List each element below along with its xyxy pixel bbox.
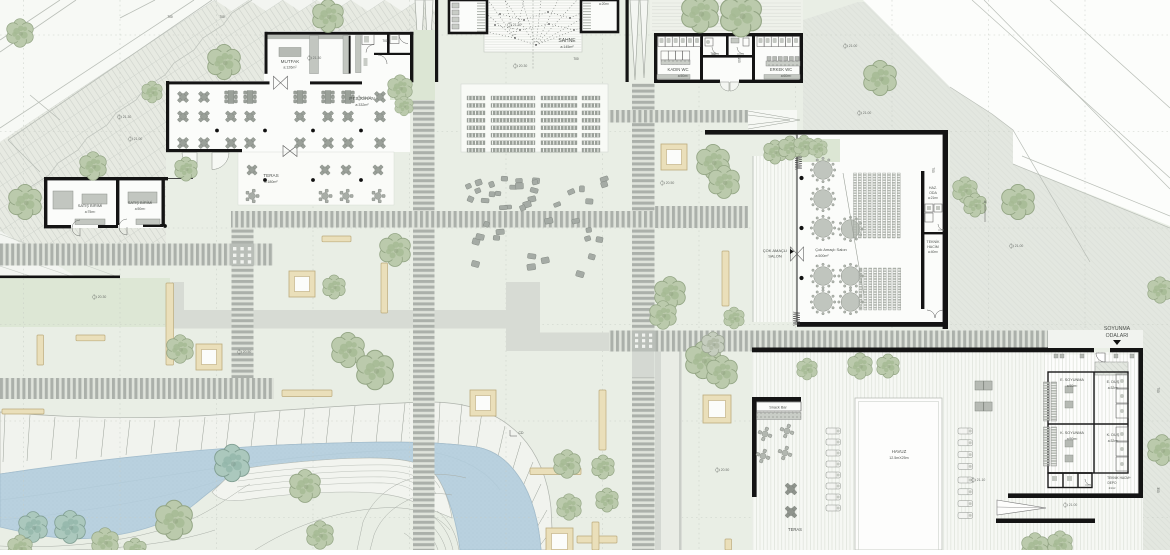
svg-text:a:20m²: a:20m² <box>599 2 609 6</box>
svg-text:20.50: 20.50 <box>666 181 675 185</box>
svg-text:21.30: 21.30 <box>123 115 132 119</box>
svg-text:a:50m²: a:50m² <box>678 74 689 78</box>
svg-text:a:40m²: a:40m² <box>928 250 938 254</box>
svg-text:20.30: 20.30 <box>98 295 107 299</box>
svg-text:TERAS: TERAS <box>263 173 278 178</box>
svg-text:ÇOK AMAÇLI: ÇOK AMAÇLI <box>763 248 787 253</box>
svg-text:21.30: 21.30 <box>513 23 522 27</box>
svg-text:TEKNİK HACM+: TEKNİK HACM+ <box>1107 475 1131 480</box>
svg-text:a:21m²: a:21m² <box>928 196 938 200</box>
svg-text:HAVUZ: HAVUZ <box>892 449 907 454</box>
svg-text:a:145m²: a:145m² <box>560 45 574 49</box>
svg-text:700: 700 <box>710 52 716 56</box>
svg-text:20.30: 20.30 <box>519 64 528 68</box>
svg-text:a:32m²: a:32m² <box>1108 386 1119 390</box>
svg-text:21m²: 21m² <box>1109 486 1116 490</box>
svg-text:Snack Bar: Snack Bar <box>769 406 787 410</box>
svg-text:21.30: 21.30 <box>363 96 372 100</box>
svg-text:21.00: 21.00 <box>1015 244 1024 248</box>
svg-text:a:126m²: a:126m² <box>283 66 297 70</box>
svg-text:ERKEK WC: ERKEK WC <box>770 67 792 72</box>
svg-text:TEKNİK: TEKNİK <box>927 239 941 244</box>
svg-text:E. SOYUNMA: E. SOYUNMA <box>1060 378 1084 382</box>
svg-text:SATIŞ BİRİMİ: SATIŞ BİRİMİ <box>78 203 103 208</box>
svg-text:700: 700 <box>382 39 388 43</box>
svg-text:ODALARI: ODALARI <box>1106 333 1129 339</box>
svg-text:12.5mX25m: 12.5mX25m <box>889 456 908 460</box>
svg-text:SOYUNMA: SOYUNMA <box>1104 326 1131 332</box>
svg-text:21.00: 21.00 <box>849 44 858 48</box>
svg-text:21.30: 21.30 <box>313 56 322 60</box>
svg-text:ODA: ODA <box>929 191 937 195</box>
svg-text:a:75m²: a:75m² <box>85 210 96 214</box>
svg-text:20.50: 20.50 <box>243 350 252 354</box>
svg-text:a:50m²: a:50m² <box>1067 437 1078 441</box>
svg-text:HACİM: HACİM <box>927 244 939 249</box>
svg-text:100: 100 <box>737 57 741 63</box>
svg-text:21.00: 21.00 <box>134 137 143 141</box>
svg-text:A: A <box>984 199 987 204</box>
svg-text:700: 700 <box>573 57 579 61</box>
svg-text:a:60m²: a:60m² <box>781 74 792 78</box>
svg-text:SATIŞ BİRİMİ: SATIŞ BİRİMİ <box>128 200 153 205</box>
svg-text:a:50m²: a:50m² <box>135 207 146 211</box>
svg-text:21.00: 21.00 <box>863 111 872 115</box>
svg-text:K. DUŞ: K. DUŞ <box>1107 433 1120 437</box>
svg-text:21.00: 21.00 <box>1069 503 1078 507</box>
svg-text:700: 700 <box>219 15 225 19</box>
svg-text:700: 700 <box>931 167 935 173</box>
svg-text:700: 700 <box>1156 387 1160 393</box>
svg-text:Çok Amaçlı Salon: Çok Amaçlı Salon <box>815 247 847 252</box>
svg-text:700: 700 <box>167 15 173 19</box>
svg-text:CD: CD <box>519 431 524 435</box>
svg-text:300: 300 <box>1156 487 1160 493</box>
svg-text:a:500m²: a:500m² <box>815 254 829 258</box>
svg-text:DEPO: DEPO <box>1107 481 1117 485</box>
svg-text:SALON: SALON <box>768 254 782 259</box>
svg-text:21.10: 21.10 <box>977 478 986 482</box>
svg-text:a:50m²: a:50m² <box>1067 384 1078 388</box>
svg-text:20.50: 20.50 <box>721 468 730 472</box>
svg-text:a:32m²: a:32m² <box>1108 439 1119 443</box>
svg-text:HAZ.: HAZ. <box>929 186 937 190</box>
svg-text:KADIN WC: KADIN WC <box>668 67 689 72</box>
svg-text:a:180m²: a:180m² <box>264 180 278 184</box>
svg-text:SAHNE: SAHNE <box>558 38 576 44</box>
svg-text:MUTFAK: MUTFAK <box>281 59 301 64</box>
svg-text:TERAS: TERAS <box>788 527 802 532</box>
svg-text:a:332m²: a:332m² <box>355 103 369 107</box>
svg-text:K. SOYUNMA: K. SOYUNMA <box>1060 431 1084 435</box>
svg-text:E. DUŞ: E. DUŞ <box>1107 380 1120 384</box>
